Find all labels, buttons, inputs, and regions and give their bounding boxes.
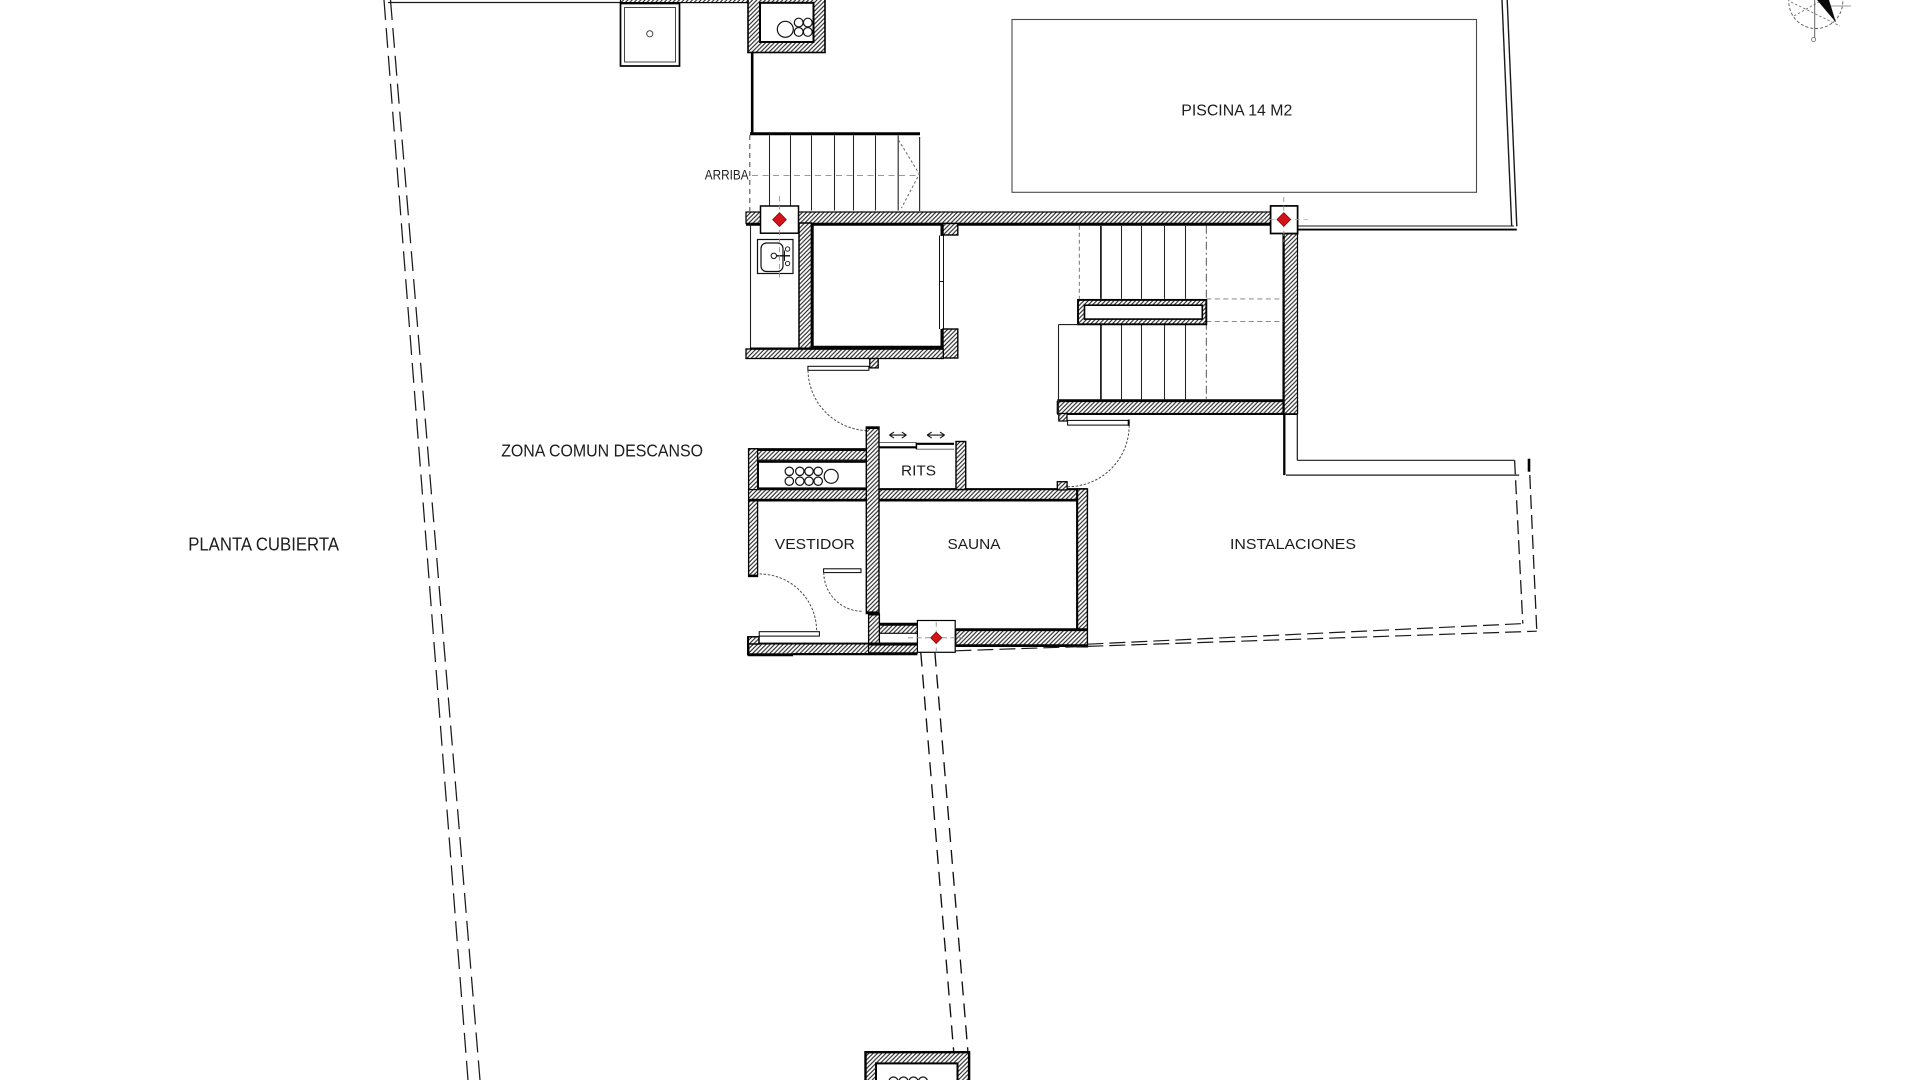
svg-text:VESTIDOR: VESTIDOR [775, 536, 855, 553]
svg-text:ARRIBA: ARRIBA [705, 166, 749, 182]
svg-text:PISCINA 14 M2: PISCINA 14 M2 [1181, 103, 1292, 120]
svg-text:INSTALACIONES: INSTALACIONES [1230, 536, 1356, 553]
svg-text:RITS: RITS [901, 463, 936, 480]
svg-text:ZONA COMUN DESCANSO: ZONA COMUN DESCANSO [501, 440, 703, 460]
svg-text:SAUNA: SAUNA [948, 536, 1001, 553]
svg-text:PLANTA CUBIERTA: PLANTA CUBIERTA [188, 533, 339, 554]
